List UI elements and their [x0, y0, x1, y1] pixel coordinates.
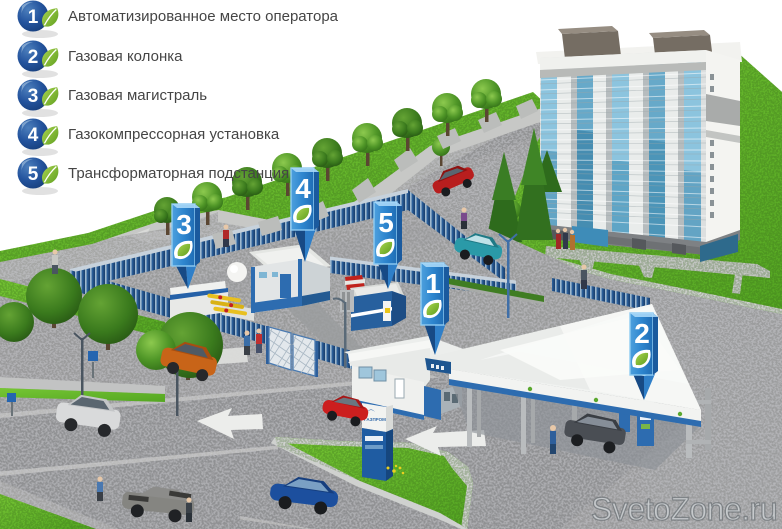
svg-text:Газовая колонка: Газовая колонка	[68, 48, 183, 65]
svg-text:3: 3	[28, 86, 39, 107]
svg-text:1: 1	[425, 268, 441, 299]
svg-text:Газовая магистраль: Газовая магистраль	[68, 87, 207, 104]
svg-text:4: 4	[295, 173, 311, 204]
svg-text:2: 2	[28, 47, 39, 68]
svg-text:4: 4	[28, 125, 39, 146]
svg-text:Трансформаторная подстанция: Трансформаторная подстанция	[68, 165, 289, 182]
svg-text:5: 5	[28, 164, 39, 185]
svg-text:5: 5	[378, 207, 394, 238]
svg-text:3: 3	[176, 209, 192, 240]
svg-text:ГАЗПРОМ: ГАЗПРОМ	[364, 417, 386, 422]
svg-text:1: 1	[28, 7, 39, 28]
svg-text:Автоматизированное место опера: Автоматизированное место оператора	[68, 8, 339, 25]
svg-text:Газокомпрессорная установка: Газокомпрессорная установка	[68, 126, 280, 143]
svg-text:SvetoZone.ru: SvetoZone.ru	[591, 491, 777, 527]
svg-text:2: 2	[634, 318, 650, 349]
